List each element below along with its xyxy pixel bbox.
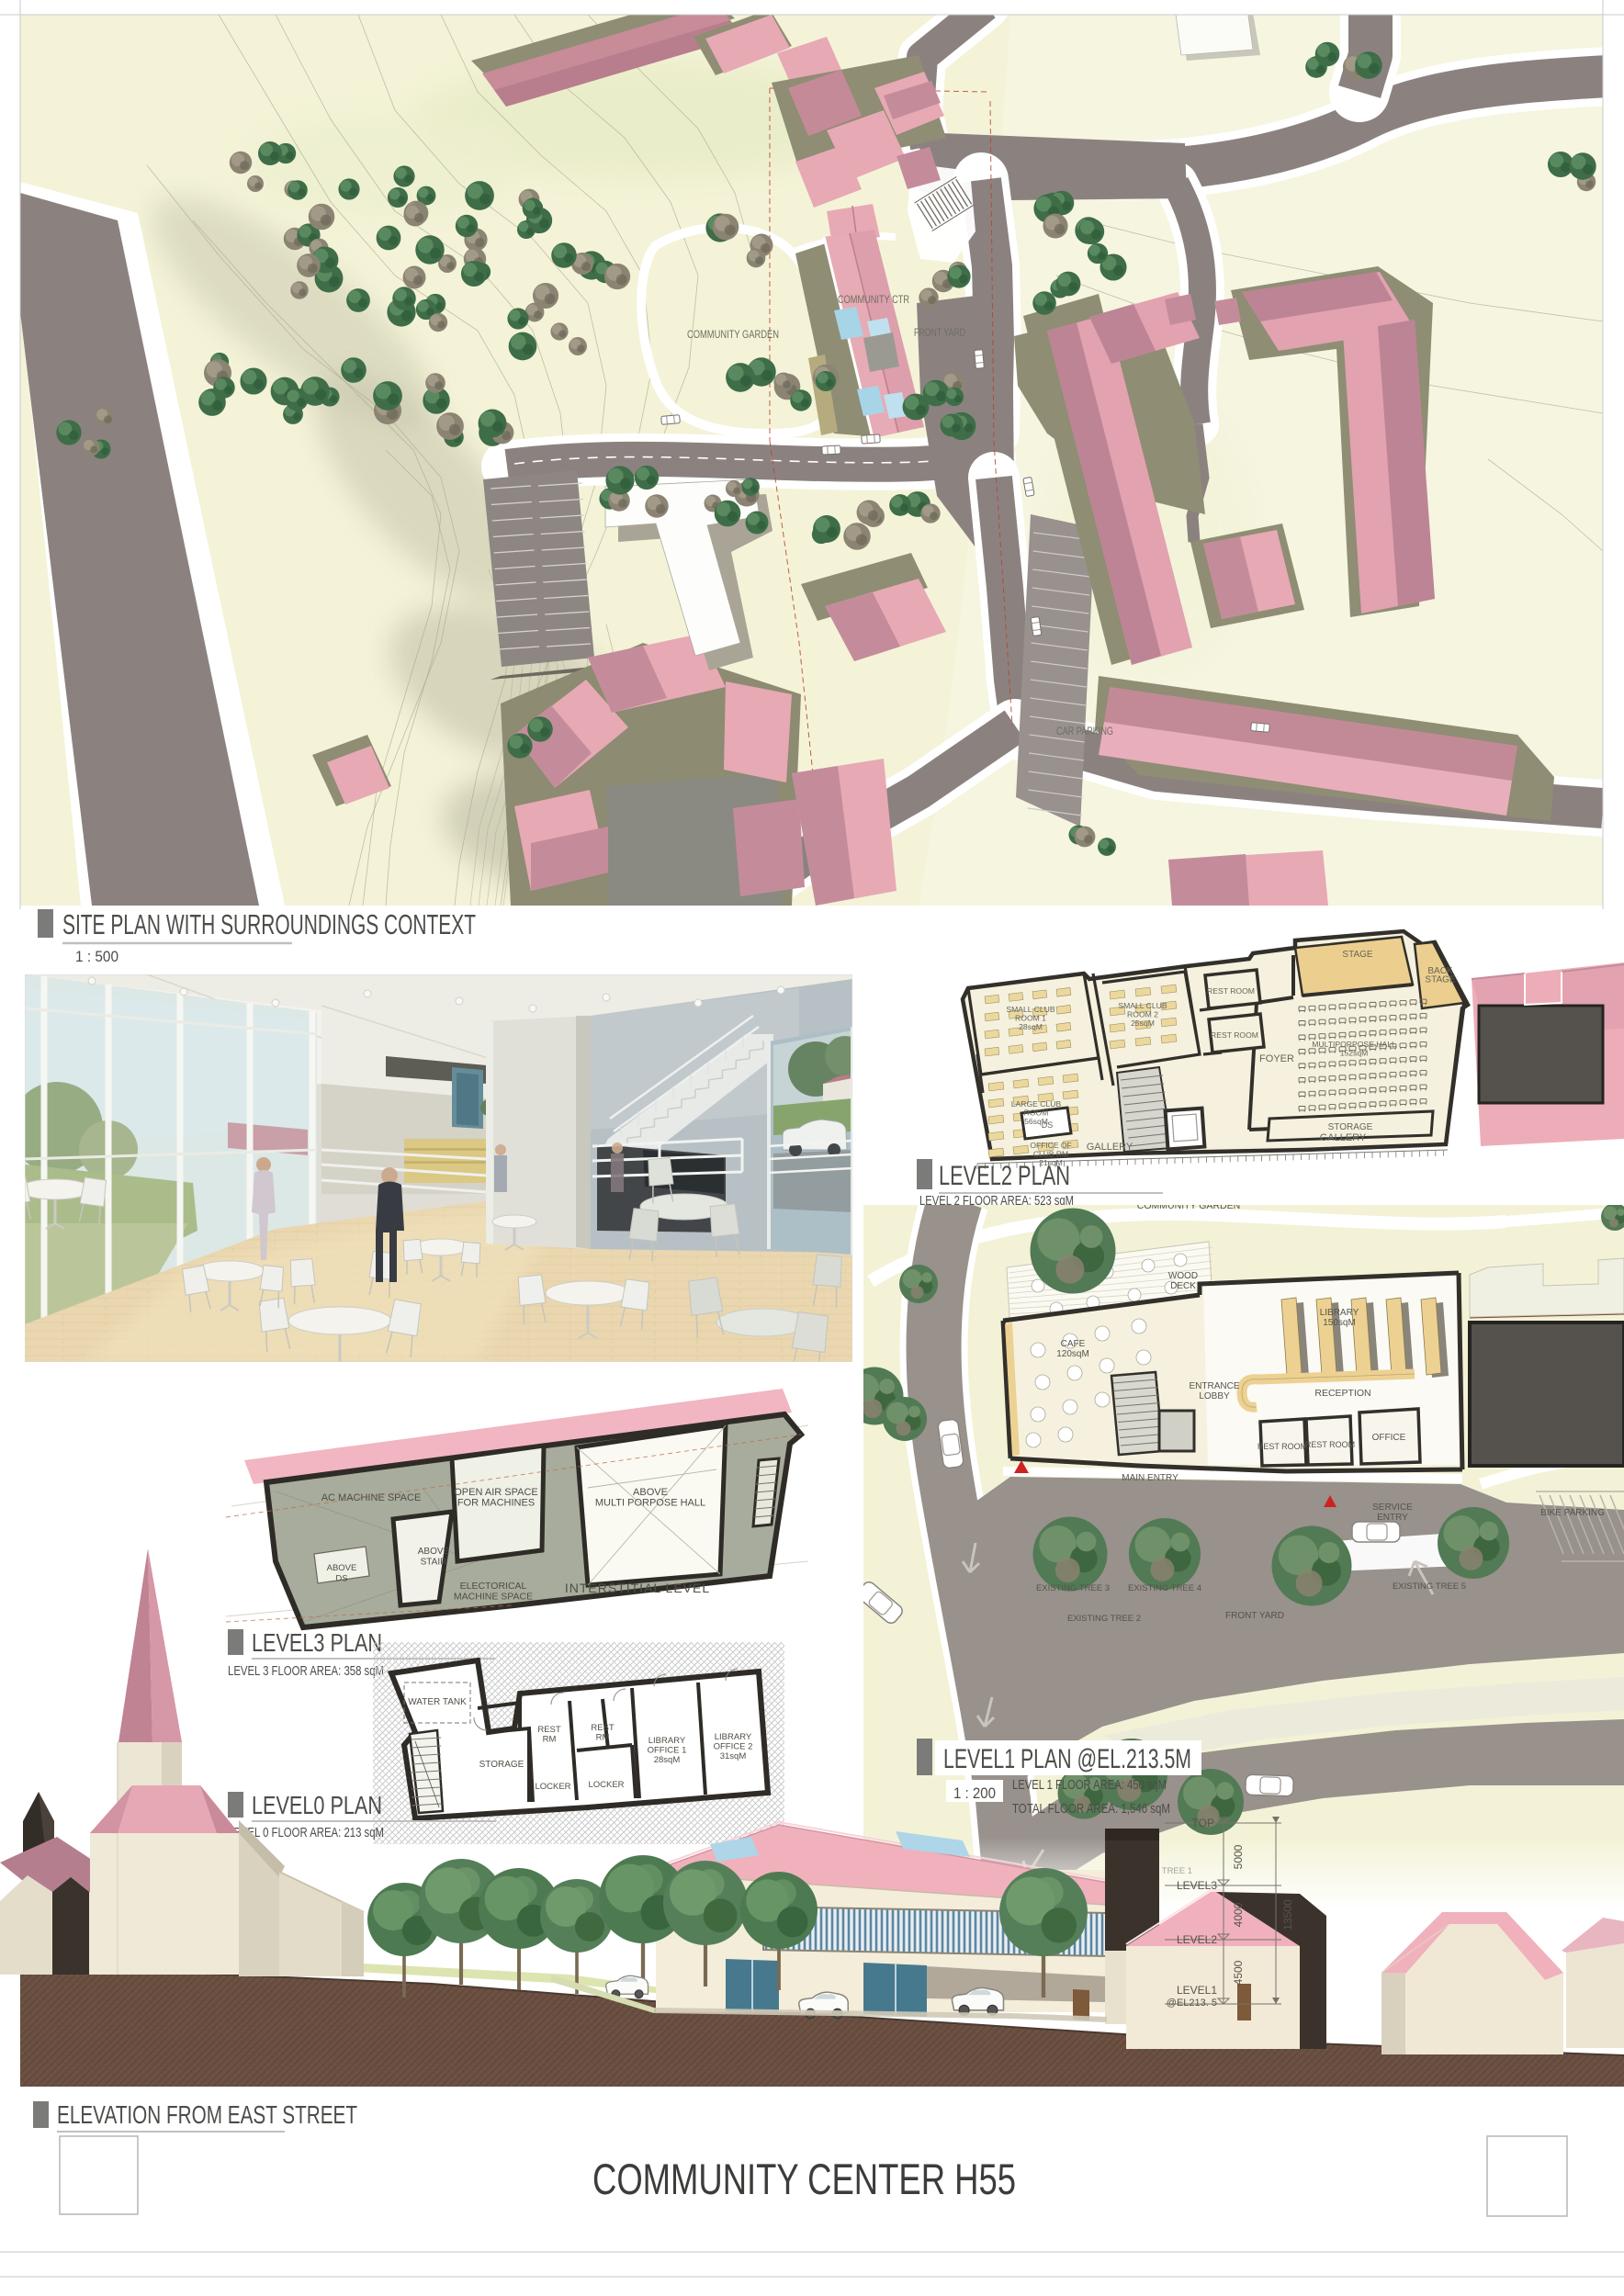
svg-text:150sqM: 150sqM <box>1323 1318 1356 1328</box>
svg-text:LIBRARY: LIBRARY <box>1320 1308 1359 1318</box>
svg-text:LOBBY: LOBBY <box>1199 1391 1230 1401</box>
svg-text:REST: REST <box>537 1725 561 1735</box>
svg-text:LEVEL0 PLAN: LEVEL0 PLAN <box>252 1791 382 1819</box>
svg-text:MULTI PORPOSE HALL: MULTI PORPOSE HALL <box>595 1498 705 1509</box>
svg-text:REST: REST <box>591 1723 615 1733</box>
svg-text:SITE PLAN WITH SURROUNDINGS CO: SITE PLAN WITH SURROUNDINGS CONTEXT <box>62 908 476 940</box>
svg-text:OFFICE OF: OFFICE OF <box>1030 1141 1071 1150</box>
svg-text:LOCKER: LOCKER <box>535 1782 570 1792</box>
svg-text:LIBRARY: LIBRARY <box>648 1736 686 1746</box>
svg-text:@EL213. 5: @EL213. 5 <box>1167 1998 1217 2009</box>
svg-text:ENTRY: ENTRY <box>1377 1513 1408 1523</box>
svg-text:LEVEL1 PLAN @EL.213.5M: LEVEL1 PLAN @EL.213.5M <box>943 1744 1191 1774</box>
svg-text:FOYER: FOYER <box>1259 1053 1294 1064</box>
svg-text:ROOM: ROOM <box>1024 1109 1049 1118</box>
svg-text:DS: DS <box>1042 1120 1054 1130</box>
svg-text:FOR MACHINES: FOR MACHINES <box>457 1498 535 1509</box>
svg-text:LIBRARY: LIBRARY <box>715 1732 752 1742</box>
svg-text:1 : 200: 1 : 200 <box>953 1784 996 1802</box>
svg-text:WOOD: WOOD <box>1168 1271 1198 1281</box>
svg-text:LEVEL 1 FLOOR AREA: 450 sqM: LEVEL 1 FLOOR AREA: 450 sqM <box>1012 1777 1167 1793</box>
svg-text:STORAGE: STORAGE <box>1328 1122 1373 1132</box>
svg-text:ROOM 2: ROOM 2 <box>1127 1010 1158 1019</box>
svg-text:REST ROOM: REST ROOM <box>1257 1442 1307 1451</box>
svg-text:LEVEL3 PLAN: LEVEL3 PLAN <box>252 1628 382 1657</box>
svg-text:RECEPTION: RECEPTION <box>1314 1388 1370 1399</box>
svg-text:SMALL CLUB: SMALL CLUB <box>1006 1005 1054 1014</box>
svg-text:EXISTING TREE 5: EXISTING TREE 5 <box>1393 1581 1466 1592</box>
svg-text:SERVICE: SERVICE <box>1372 1503 1413 1513</box>
svg-text:28sqM: 28sqM <box>654 1755 681 1765</box>
svg-text:COMMUNITY GARDEN: COMMUNITY GARDEN <box>1137 1200 1240 1211</box>
svg-text:DECK: DECK <box>1170 1281 1196 1291</box>
svg-text:DS: DS <box>335 1574 347 1584</box>
svg-text:TOTAL FLOOR AREA: 1,546 sqM: TOTAL FLOOR AREA: 1,546 sqM <box>1012 1801 1170 1817</box>
svg-text:FRONT YARD: FRONT YARD <box>1225 1611 1284 1621</box>
svg-text:FRONT YARD: FRONT YARD <box>914 328 965 339</box>
svg-text:LARGE CLUB: LARGE CLUB <box>1011 1099 1062 1109</box>
svg-text:OFFICE: OFFICE <box>1372 1433 1406 1443</box>
svg-text:COMMUNITY GARDEN: COMMUNITY GARDEN <box>687 330 779 341</box>
svg-text:LOCKER: LOCKER <box>588 1780 624 1790</box>
svg-text:EXISTING TREE 2: EXISTING TREE 2 <box>1067 1614 1141 1624</box>
svg-text:LEVEL2 PLAN: LEVEL2 PLAN <box>939 1161 1070 1191</box>
svg-text:MAIN ENTRY: MAIN ENTRY <box>1122 1473 1179 1483</box>
svg-text:REST ROOM: REST ROOM <box>1207 986 1255 996</box>
svg-text:MACHINE SPACE: MACHINE SPACE <box>454 1592 533 1603</box>
svg-text:120sqM: 120sqM <box>1056 1349 1089 1359</box>
svg-text:OFFICE 1: OFFICE 1 <box>648 1746 687 1756</box>
svg-text:4500: 4500 <box>1232 1960 1245 1985</box>
svg-text:GALLERY: GALLERY <box>1087 1142 1133 1153</box>
svg-text:152sqM: 152sqM <box>1340 1049 1369 1058</box>
svg-text:ABOVE: ABOVE <box>327 1563 357 1573</box>
svg-text:BIKE PARKING: BIKE PARKING <box>1540 1508 1605 1518</box>
svg-text:31sqM: 31sqM <box>720 1751 747 1761</box>
svg-text:TOP: TOP <box>1192 1817 1214 1829</box>
svg-text:STAIR: STAIR <box>421 1558 447 1568</box>
svg-text:GALLERY: GALLERY <box>1320 1132 1367 1143</box>
svg-text:CLUB RM: CLUB RM <box>1033 1150 1068 1159</box>
svg-text:CAFE: CAFE <box>1061 1339 1086 1349</box>
svg-text:ABOVE: ABOVE <box>418 1547 450 1557</box>
svg-text:13500: 13500 <box>1281 1899 1294 1930</box>
svg-text:25sqM: 25sqM <box>1131 1019 1155 1028</box>
svg-text:OPEN AIR SPACE: OPEN AIR SPACE <box>454 1487 538 1498</box>
svg-text:EXISTING TREE 3: EXISTING TREE 3 <box>1036 1583 1110 1593</box>
svg-text:RM: RM <box>596 1733 610 1743</box>
svg-text:LEVEL1: LEVEL1 <box>1177 1984 1217 1997</box>
svg-text:EXISTING TREE 4: EXISTING TREE 4 <box>1128 1583 1201 1593</box>
svg-text:ELECTORICAL: ELECTORICAL <box>460 1581 527 1592</box>
svg-text:WATER TANK: WATER TANK <box>408 1697 467 1707</box>
svg-text:INTERSTITIAL LEVEL: INTERSTITIAL LEVEL <box>565 1581 710 1595</box>
svg-text:28sqM: 28sqM <box>1019 1022 1043 1031</box>
svg-text:COMMUNITY CTR: COMMUNITY CTR <box>838 295 909 306</box>
svg-text:1 : 500: 1 : 500 <box>75 948 118 965</box>
svg-text:ROOM 1: ROOM 1 <box>1015 1014 1046 1023</box>
svg-text:STORAGE: STORAGE <box>479 1760 524 1770</box>
svg-text:CAR PARKING: CAR PARKING <box>1056 726 1113 737</box>
svg-text:LEVEL 3 FLOOR AREA: 358 sqM: LEVEL 3 FLOOR AREA: 358 sqM <box>228 1663 384 1679</box>
svg-text:REST ROOM: REST ROOM <box>1305 1440 1355 1449</box>
svg-text:STAGE: STAGE <box>1342 950 1372 960</box>
svg-text:LEVEL2: LEVEL2 <box>1177 1933 1217 1946</box>
svg-text:RM: RM <box>543 1735 557 1745</box>
svg-text:5000: 5000 <box>1232 1844 1245 1869</box>
svg-text:4000: 4000 <box>1232 1902 1245 1927</box>
svg-text:MULTIPORPOSE HALL: MULTIPORPOSE HALL <box>1312 1040 1396 1049</box>
svg-text:AC MACHINE SPACE: AC MACHINE SPACE <box>321 1492 422 1503</box>
svg-text:ELEVATION FROM EAST STREET: ELEVATION FROM EAST STREET <box>57 2100 357 2129</box>
svg-text:STAGE: STAGE <box>1425 975 1455 985</box>
svg-text:ABOVE: ABOVE <box>633 1487 668 1498</box>
svg-text:COMMUNITY CENTER H55: COMMUNITY CENTER H55 <box>592 2155 1016 2203</box>
svg-text:OFFICE 2: OFFICE 2 <box>714 1742 753 1752</box>
svg-text:SMALL CLUB: SMALL CLUB <box>1118 1001 1167 1010</box>
svg-text:REST ROOM: REST ROOM <box>1211 1030 1258 1040</box>
svg-text:LEVEL3: LEVEL3 <box>1177 1879 1217 1892</box>
svg-text:ENTRANCE: ENTRANCE <box>1189 1381 1239 1391</box>
